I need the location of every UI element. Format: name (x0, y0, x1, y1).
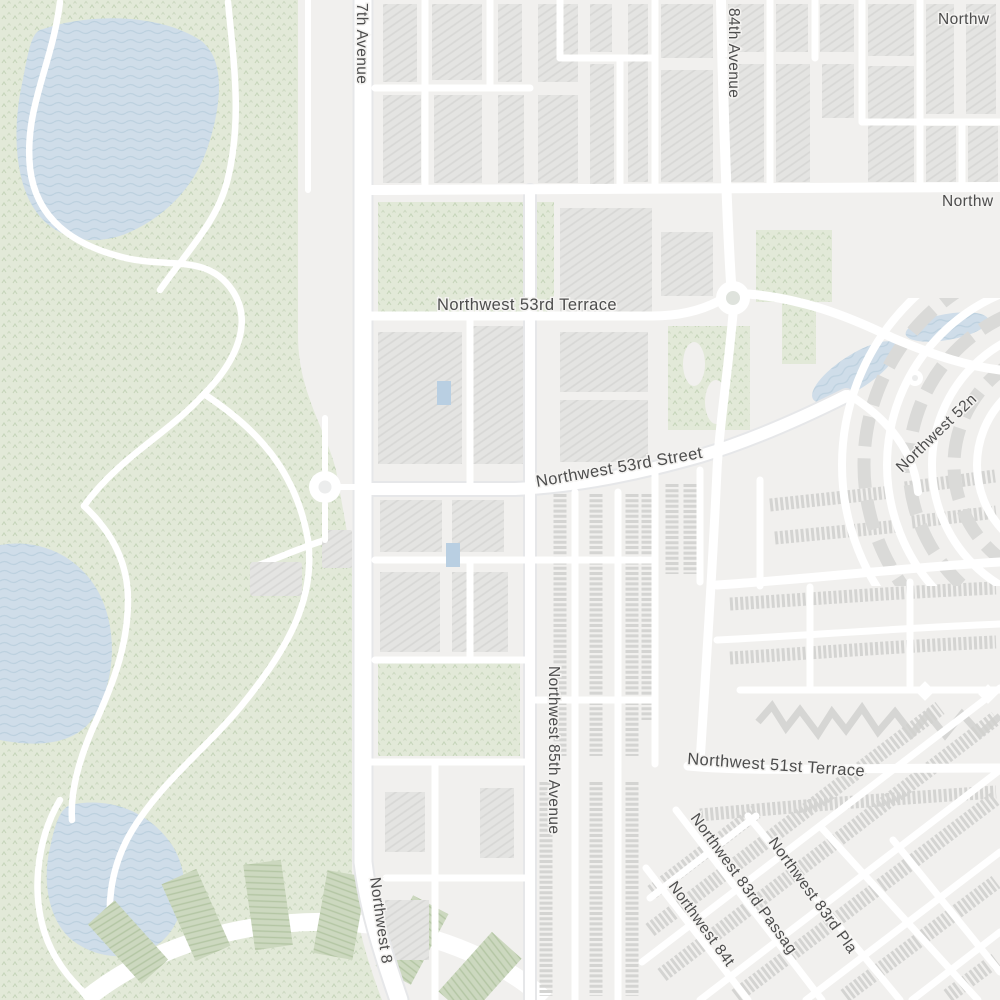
map-canvas[interactable]: 7th Avenue Northw 84th Avenue Northw Nor… (0, 0, 1000, 1000)
park-hole (683, 342, 705, 386)
map-svg: 7th Avenue Northw 84th Avenue Northw Nor… (0, 0, 1000, 1000)
street-label-top-right: Northw (938, 11, 990, 28)
road-top-horizontal (371, 187, 1000, 190)
street-label-85th-avenue: Northwest 85th Avenue (545, 666, 562, 834)
street-label-right-edge: Northw (942, 193, 994, 210)
street-label-87th-avenue-north: 7th Avenue (353, 3, 370, 84)
street-label-84th-avenue: 84th Avenue (725, 8, 742, 98)
street-label-53rd-terrace: Northwest 53rd Terrace (437, 296, 617, 314)
